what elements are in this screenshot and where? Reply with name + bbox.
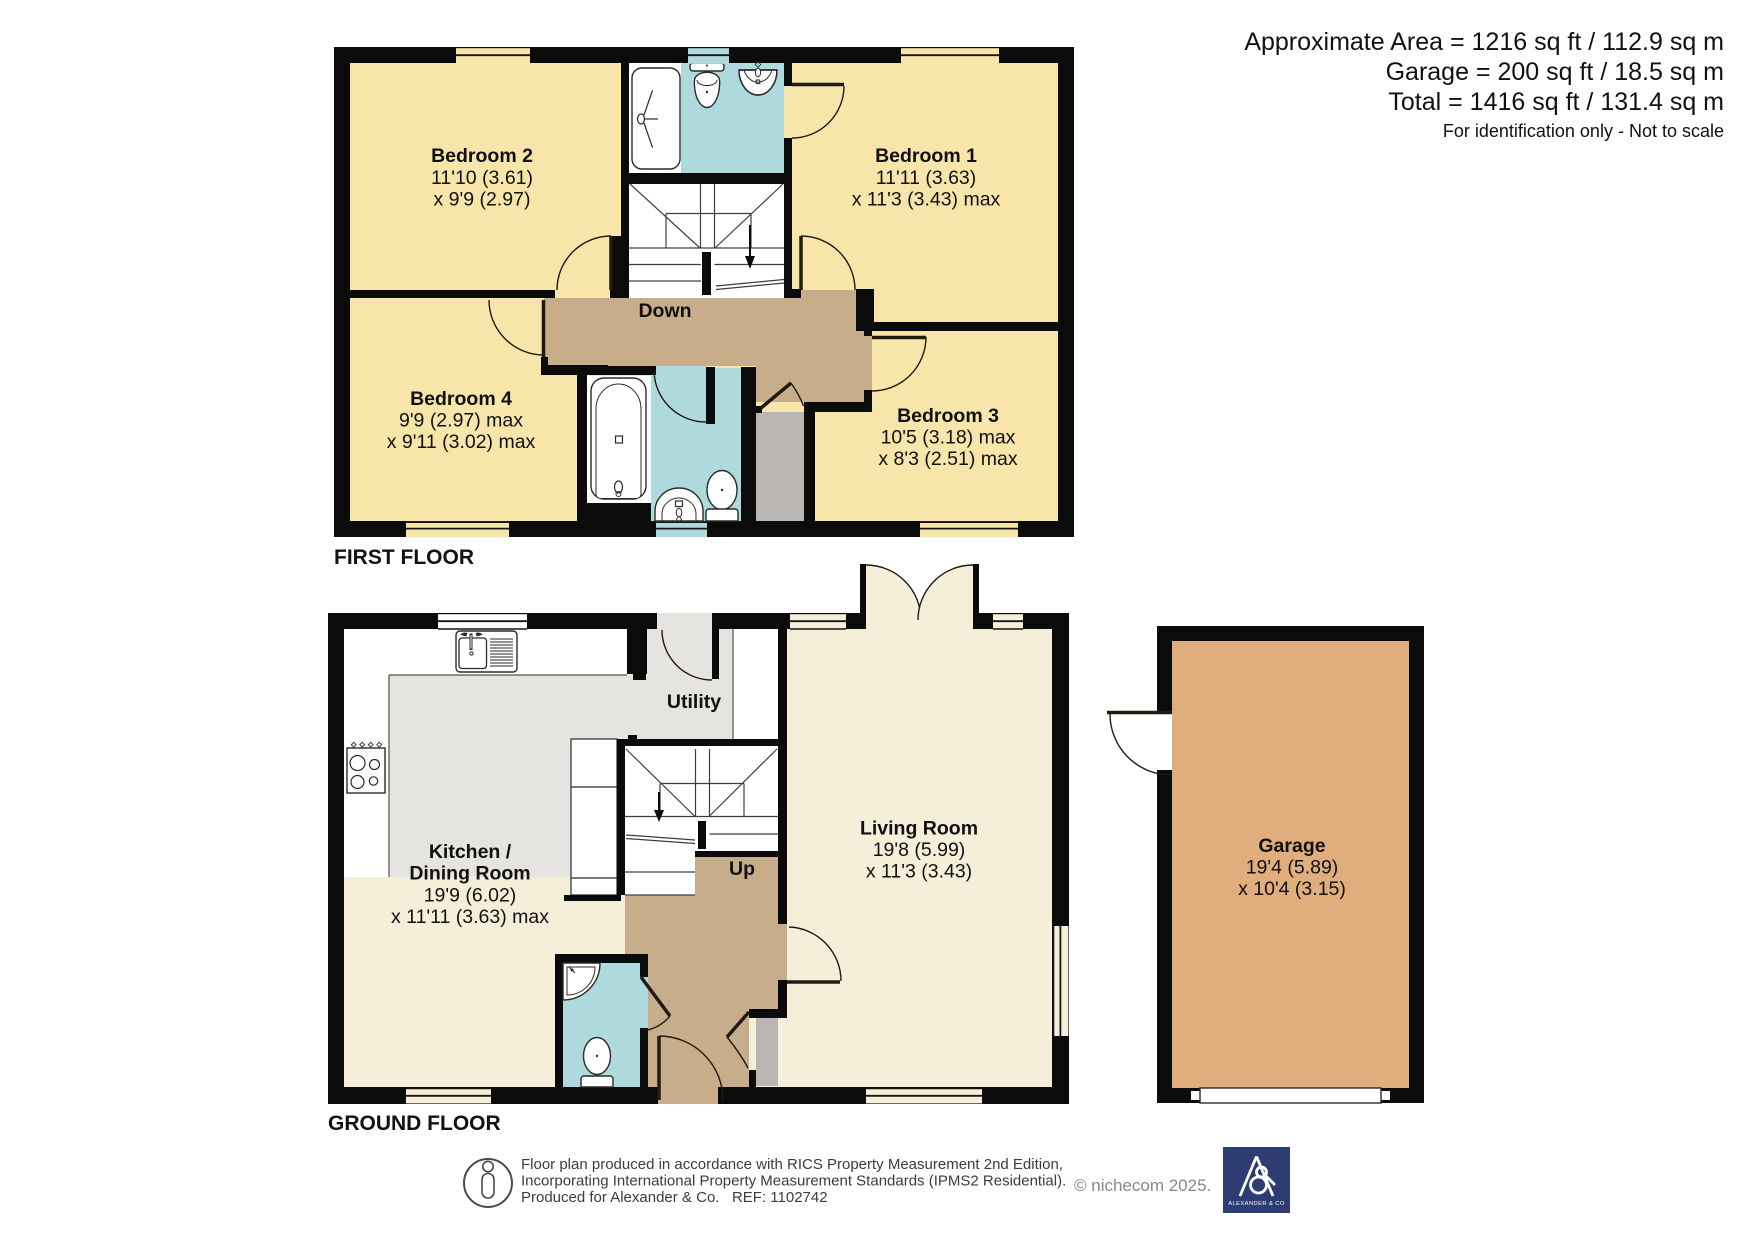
svg-text:Approximate Area = 1216 sq ft: Approximate Area = 1216 sq ft / 112.9 sq… bbox=[1244, 28, 1724, 56]
svg-text:© nichecom 2025.: © nichecom 2025. bbox=[1074, 1176, 1211, 1195]
svg-text:Dining Room: Dining Room bbox=[409, 863, 530, 885]
svg-text:Up: Up bbox=[729, 858, 755, 880]
svg-text:Garage: Garage bbox=[1258, 835, 1325, 857]
svg-text:x 11'3 (3.43): x 11'3 (3.43) bbox=[866, 861, 972, 883]
svg-text:Incorporating International Pr: Incorporating International Property Mea… bbox=[521, 1173, 1066, 1190]
svg-text:x 10'4 (3.15): x 10'4 (3.15) bbox=[1238, 878, 1346, 900]
svg-text:Utility: Utility bbox=[667, 691, 721, 713]
svg-text:Kitchen /: Kitchen / bbox=[429, 841, 512, 863]
svg-text:19'8 (5.99): 19'8 (5.99) bbox=[873, 839, 966, 861]
svg-text:9'9 (2.97) max: 9'9 (2.97) max bbox=[399, 410, 523, 432]
svg-text:ALEXANDER & CO: ALEXANDER & CO bbox=[1228, 1201, 1285, 1207]
svg-text:Bedroom 3: Bedroom 3 bbox=[897, 405, 999, 427]
svg-text:Produced for Alexander & Co.: Produced for Alexander & Co. REF: 110274… bbox=[521, 1189, 828, 1206]
svg-text:Bedroom 2: Bedroom 2 bbox=[431, 145, 533, 167]
svg-text:x 9'9 (2.97): x 9'9 (2.97) bbox=[434, 189, 531, 211]
svg-text:FIRST FLOOR: FIRST FLOOR bbox=[334, 546, 474, 569]
svg-text:x 11'3 (3.43) max: x 11'3 (3.43) max bbox=[852, 189, 1001, 211]
svg-text:For identification only - Not: For identification only - Not to scale bbox=[1443, 121, 1724, 141]
svg-text:Total = 1416 sq ft / 131.4 sq: Total = 1416 sq ft / 131.4 sq m bbox=[1388, 88, 1724, 116]
svg-text:Down: Down bbox=[638, 300, 691, 322]
svg-text:10'5 (3.18) max: 10'5 (3.18) max bbox=[881, 427, 1016, 449]
svg-text:Living Room: Living Room bbox=[860, 818, 978, 840]
svg-text:Bedroom 1: Bedroom 1 bbox=[875, 145, 977, 167]
svg-text:11'11 (3.63): 11'11 (3.63) bbox=[876, 167, 977, 189]
svg-text:x 8'3 (2.51) max: x 8'3 (2.51) max bbox=[878, 448, 1017, 470]
svg-text:x 11'11 (3.63) max: x 11'11 (3.63) max bbox=[391, 906, 549, 928]
svg-text:Bedroom 4: Bedroom 4 bbox=[410, 388, 512, 410]
svg-text:11'10 (3.61): 11'10 (3.61) bbox=[431, 167, 533, 189]
svg-text:19'4 (5.89): 19'4 (5.89) bbox=[1246, 857, 1339, 879]
svg-text:x 9'11 (3.02) max: x 9'11 (3.02) max bbox=[387, 431, 536, 453]
svg-text:Floor plan produced in accorda: Floor plan produced in accordance with R… bbox=[521, 1156, 1063, 1173]
svg-text:19'9 (6.02): 19'9 (6.02) bbox=[424, 885, 517, 907]
svg-text:GROUND FLOOR: GROUND FLOOR bbox=[328, 1112, 501, 1135]
svg-text:Garage = 200 sq ft / 18.5 sq m: Garage = 200 sq ft / 18.5 sq m bbox=[1386, 58, 1724, 86]
